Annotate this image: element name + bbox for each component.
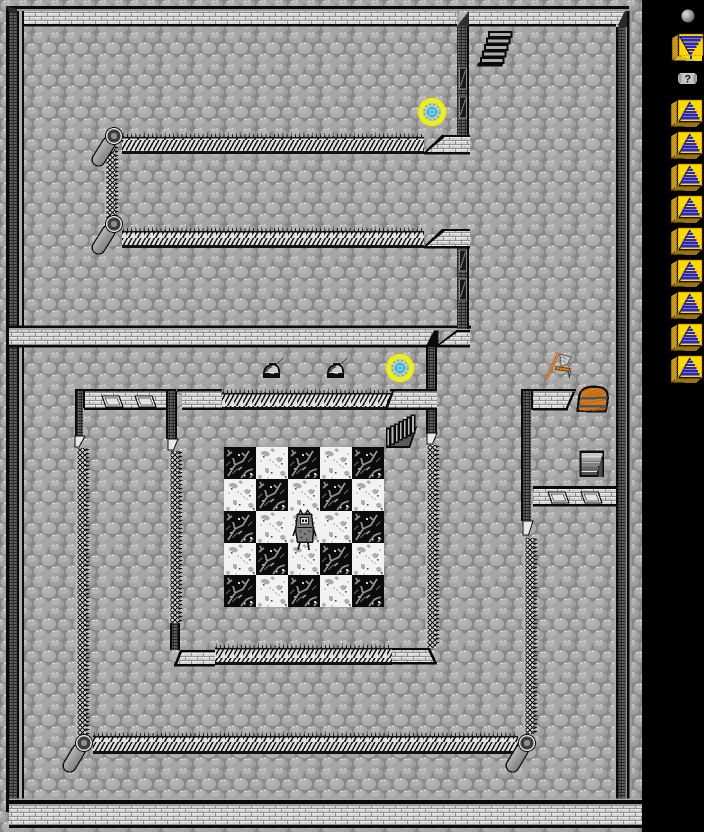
svg-text:?: ? [684,74,691,86]
